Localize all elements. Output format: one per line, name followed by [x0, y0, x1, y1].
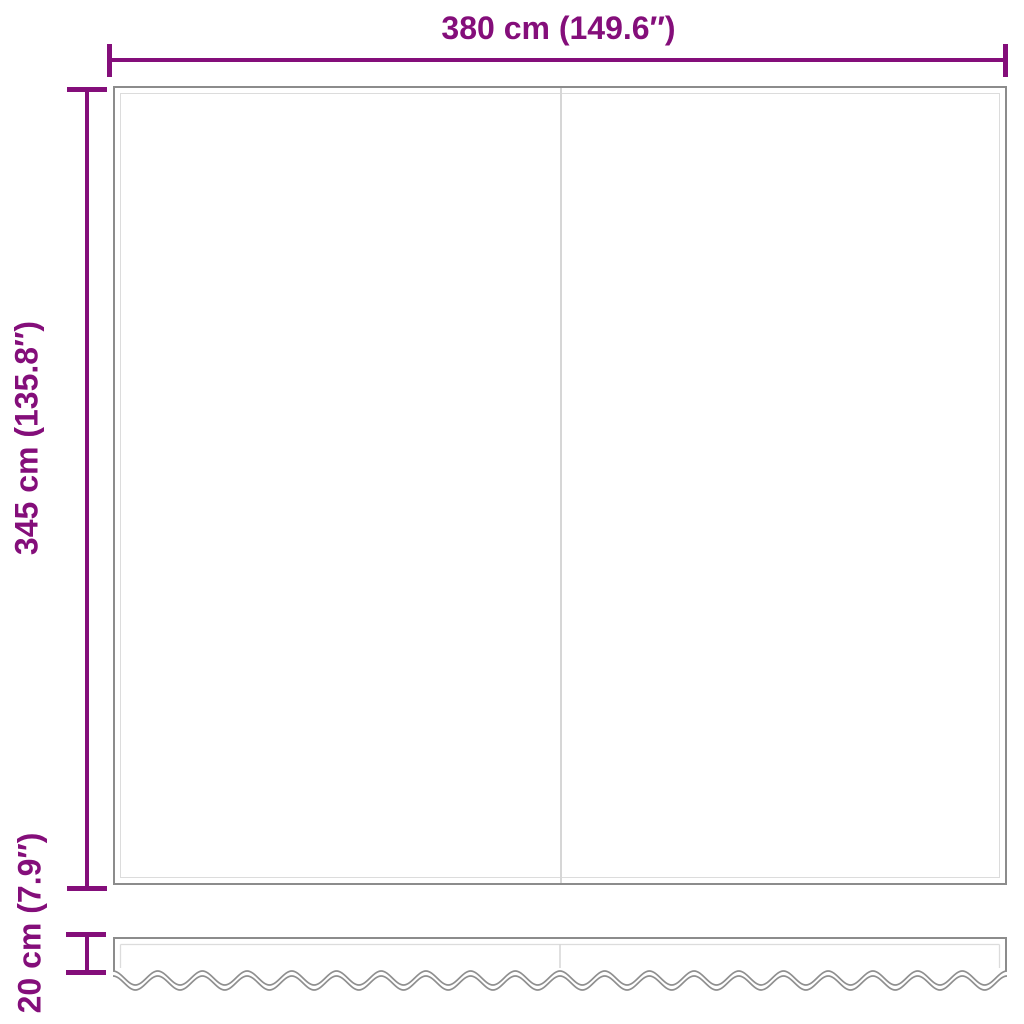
fabric-center-seam: [560, 88, 562, 883]
height-dimension-end-cap-top: [67, 87, 107, 92]
valance-dimension-label: 20 cm (7.9″): [12, 833, 49, 1014]
height-dimension-line: [85, 89, 89, 888]
valance-wave-hem-lower: [113, 976, 1007, 990]
width-dimension-line: [109, 58, 1007, 62]
valance-dimension-end-cap-top: [66, 932, 106, 937]
fabric-front-panel: [113, 86, 1007, 885]
product-dimension-diagram: 380 cm (149.6″) 345 cm (135.8″) 20 cm (7…: [0, 0, 1024, 1024]
width-dimension-label: 380 cm (149.6″): [110, 10, 1007, 47]
valance-dimension-line: [85, 935, 89, 973]
width-dimension-end-cap-left: [107, 44, 112, 77]
width-dimension-end-cap-right: [1003, 44, 1008, 77]
valance-wave-hem-upper: [113, 971, 1007, 985]
valance-dimension-end-cap-bottom: [66, 970, 106, 975]
height-dimension-end-cap-bottom: [67, 886, 107, 891]
valance-strip: [113, 937, 1007, 999]
height-dimension-label: 345 cm (135.8″): [9, 321, 46, 555]
